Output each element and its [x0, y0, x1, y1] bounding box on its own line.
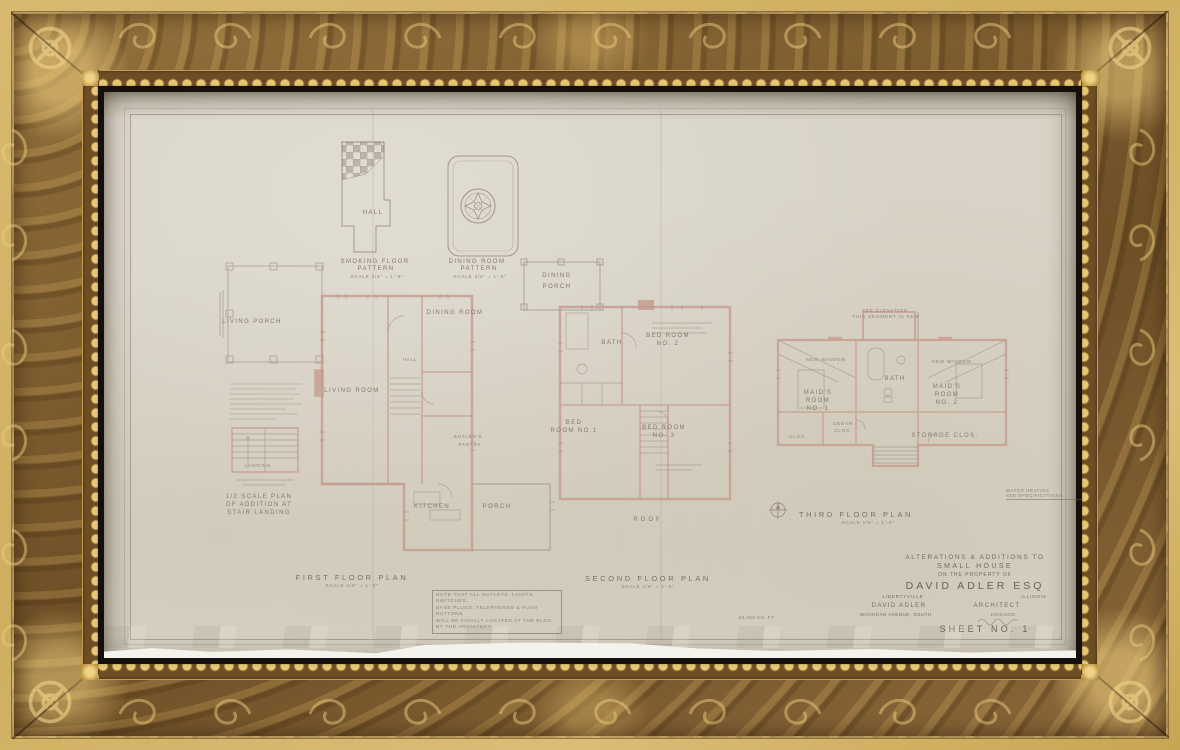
frame-bead-band-right [1081, 70, 1098, 680]
dining-room-label: DINING ROOM [427, 310, 484, 316]
dining-pattern-scale: SCALE 3/4" = 1'-0" [453, 274, 506, 279]
titleblock-owner-city: LIBERTYVILLE [882, 594, 923, 599]
new-window-label-left: NEW WINDOW [806, 357, 846, 362]
living-room-label: LIVING ROOM [324, 388, 379, 394]
closet-label: CLOS. [789, 434, 807, 439]
maids-room2-label-line2: ROOM [935, 392, 959, 398]
frame-bead-band-left [82, 70, 99, 680]
third-note-line2: THIS SEGMENT IS NEW [852, 314, 919, 319]
titleblock-architect-title: ARCHITECT [974, 603, 1021, 609]
second-floor-plan-drawing [552, 293, 740, 523]
first-porch-label: PORCH [483, 504, 512, 510]
titleblock-project-line1: ALTERATIONS & ADDITIONS TO [905, 554, 1044, 561]
living-porch-label: LIVING PORCH [222, 319, 282, 325]
hall-floor-pattern-drawing [332, 138, 404, 256]
maids-room1-label-line1: MAID'S [804, 390, 833, 396]
maids-room1-label-line3: NO. 1 [807, 406, 830, 412]
stair-inset-caption-line1: 1/2 SCALE PLAN [226, 494, 293, 500]
first-hall-label: HALL [403, 357, 418, 362]
stair-inset-caption-line2: OF ADDITION AT [226, 502, 293, 508]
note-line: NOTE THAT ALL OUTLETS, LIGHTS, SWITCHES, [436, 593, 558, 606]
stair-inset-caption-line3: STAIR LANDING [227, 510, 291, 516]
kitchen-label: KITCHEN [414, 504, 450, 510]
dining-pattern-subtitle: PATTERN [461, 266, 498, 272]
bedroom1-label-line1: BED [566, 420, 583, 426]
blueprint-sheet: HALL SMOKING FLOOR PATTERN SCALE 3/4" = … [104, 92, 1076, 658]
cedar-closet-label-line1: CEDAR [833, 421, 853, 426]
photo-of-framed-drawing: { "artwork": {"description": "Framed arc… [0, 0, 1180, 750]
frame-bead-corner [82, 664, 98, 680]
cedar-closet-label-line2: CLOS. [834, 428, 852, 433]
first-floor-plan-scale: SCALE 1/8" = 1'-0" [325, 583, 378, 588]
second-bath-label: BATH [601, 340, 622, 346]
titleblock-owner-name: DAVID ADLER ESQ [906, 580, 1045, 592]
titleblock-architect-name: DAVID ADLER [872, 603, 927, 609]
third-floor-plan-scale: SCALE 1/8" = 1'-0" [841, 520, 894, 525]
bedroom3-label-line2: NO. 3 [653, 433, 676, 439]
frame-bead-band-top [82, 70, 1098, 87]
bedroom1-label-line2: ROOM NO.1 [551, 428, 598, 434]
dining-porch-label-line2: PORCH [543, 284, 572, 290]
volume-note: 52,000 CU. FT. [739, 615, 776, 620]
butlers-pantry-label-line2: PANTRY [458, 442, 481, 447]
third-bath-label: BATH [884, 376, 905, 382]
dining-pattern-title: DINING ROOM [449, 259, 506, 265]
frame-bead-corner [1082, 664, 1098, 680]
maids-room2-label-line3: NO. 2 [936, 400, 959, 406]
frame-bead-corner [82, 70, 98, 86]
storage-closet-label: STORAGE CLOS. [911, 433, 978, 439]
titleblock-owner-state: ILLINOIS [1021, 594, 1046, 599]
north-arrow-icon [768, 500, 788, 520]
frame-bead-band-bottom [82, 663, 1098, 680]
titleblock-project-line2: SMALL HOUSE [937, 563, 1013, 570]
landing-label: LANDING [245, 463, 271, 468]
maids-room2-label-line1: MAID'S [933, 384, 962, 390]
hall-label: HALL [363, 210, 384, 216]
titleblock-architect-address: MICHIGAN AVENUE, SOUTH [860, 612, 932, 617]
second-floor-plan-title: SECOND FLOOR PLAN [585, 574, 711, 583]
smoking-pattern-scale: SCALE 3/4" = 1'-0" [350, 274, 403, 279]
second-floor-plan-scale: SCALE 1/8" = 1'-0" [621, 584, 674, 589]
smoking-pattern-title: SMOKING FLOOR [341, 259, 410, 265]
bedroom2-label-line2: NO. 2 [657, 341, 680, 347]
third-floor-plan-title: THIRD FLOOR PLAN [799, 510, 913, 519]
note-line: BASE PLUGS, TELEPHONES & PUSH BUTTONS [436, 606, 558, 619]
butlers-pantry-label-line1: BUTLER'S [454, 434, 482, 439]
dining-porch-label-line1: DINING [542, 273, 571, 279]
third-note-line1: SEE ELEVATION [862, 308, 908, 313]
roof-label: ROOF [633, 517, 662, 523]
heating-note-line2: SEE SPECIFICATIONS [1006, 493, 1082, 498]
titleblock-architect-city: CHICAGO [991, 612, 1016, 617]
first-floor-plan-title: FIRST FLOOR PLAN [296, 573, 409, 582]
heating-note: WATER HEATING SEE SPECIFICATIONS [1006, 488, 1082, 500]
frame-bead-corner [1082, 70, 1098, 86]
dining-room-floor-pattern-drawing [440, 150, 526, 262]
third-floor-plan-drawing [768, 300, 1016, 468]
smoking-pattern-subtitle: PATTERN [358, 266, 395, 272]
new-window-label-right: NEW WINDOW [932, 359, 972, 364]
bedroom2-label-line1: BED ROOM [646, 333, 690, 339]
titleblock-project-line3: ON THE PROPERTY OF [938, 572, 1012, 578]
bedroom3-label-line1: BED ROOM [642, 425, 686, 431]
maids-room1-label-line2: ROOM [806, 398, 830, 404]
